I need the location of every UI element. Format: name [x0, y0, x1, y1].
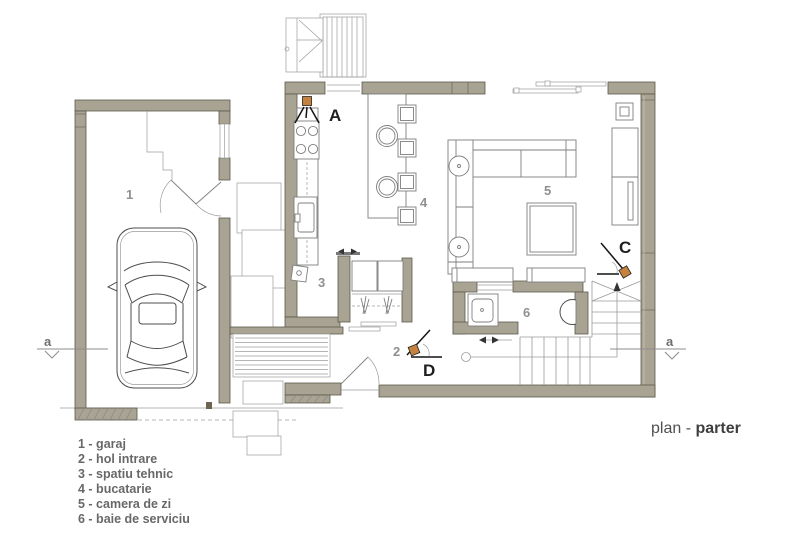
legend-item-6: 6 - baie de serviciu	[78, 512, 190, 526]
title-emphasis: parter	[695, 420, 740, 437]
side-table	[449, 237, 469, 257]
benches	[452, 268, 585, 282]
toilet	[560, 300, 576, 325]
paving-slabs	[206, 183, 286, 455]
room-number-kitchen: 4	[420, 195, 428, 210]
floor-plan: 1 2 3 4 5 6 A C D a a 1 - garaj 2 - hol …	[0, 0, 800, 534]
legend-item-2: 2 - hol intrare	[78, 452, 157, 466]
room-number-garage: 1	[126, 187, 133, 202]
column	[291, 265, 308, 282]
section-letter-right: a	[666, 334, 674, 349]
drawing-title: plan - parter	[651, 420, 741, 437]
legend-item-5: 5 - camera de zi	[78, 497, 171, 511]
marker-letter-d: D	[423, 361, 435, 380]
room-number-bath: 6	[523, 305, 530, 320]
coffee-table	[527, 203, 576, 255]
legend: 1 - garaj 2 - hol intrare 3 - spatiu teh…	[78, 437, 190, 526]
stove	[294, 121, 319, 159]
marker-letter-a: A	[329, 106, 341, 125]
mirror-left	[108, 282, 117, 291]
camera-marker-d	[407, 330, 442, 357]
legend-item-4: 4 - bucatarie	[78, 482, 152, 496]
marker-letter-c: C	[619, 238, 631, 257]
shower	[468, 294, 498, 326]
laundry	[349, 261, 403, 331]
tv-cabinet	[612, 128, 638, 225]
mirror-right	[197, 282, 206, 291]
speaker	[616, 103, 633, 120]
porch-steps	[233, 334, 330, 377]
dryer	[378, 261, 403, 291]
section-letter-left: a	[44, 334, 52, 349]
tv	[628, 182, 633, 220]
hanging-clothes	[361, 296, 392, 314]
kitchen-island	[368, 94, 416, 225]
title-prefix: plan -	[651, 420, 695, 437]
legend-item-3: 3 - spatiu tehnic	[78, 467, 173, 481]
legend-item-1: 1 - garaj	[78, 437, 126, 451]
post	[206, 402, 212, 409]
exterior-stairs	[320, 14, 366, 77]
washer	[352, 261, 377, 291]
exterior-ramp	[285, 18, 323, 72]
car	[108, 228, 206, 388]
room-number-tech: 3	[318, 275, 325, 290]
sink	[294, 197, 317, 238]
room-number-living: 5	[544, 183, 551, 198]
room-number-hall: 2	[393, 344, 400, 359]
side-table	[449, 156, 469, 176]
